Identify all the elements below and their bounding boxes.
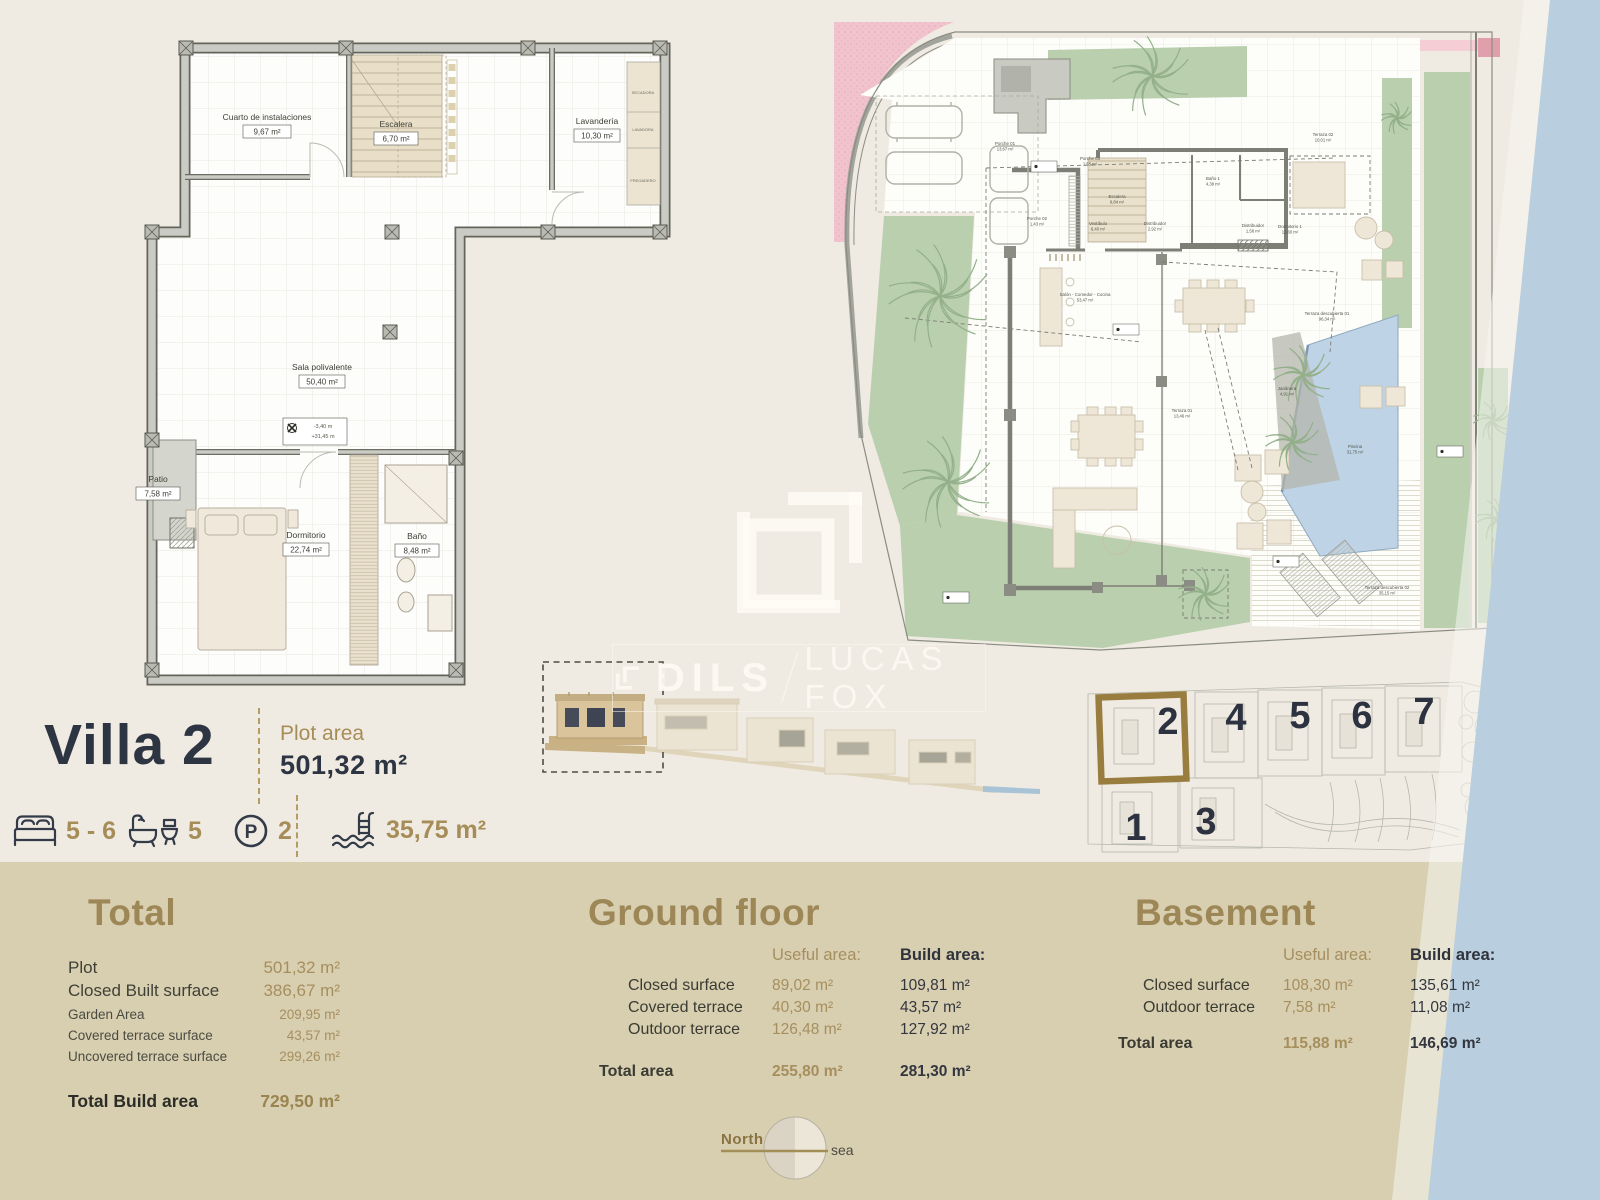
svg-text:4,38 m²: 4,38 m² (1206, 182, 1221, 187)
brand-divider (781, 653, 798, 703)
svg-text:Patio: Patio (148, 474, 168, 484)
divider-dashed (258, 708, 260, 804)
brand-bracket-icon (613, 658, 642, 698)
north-label: North (721, 1131, 764, 1148)
svg-text:SECADORA: SECADORA (632, 90, 655, 95)
divider-dashed (296, 795, 298, 857)
svg-text:6,70 m²: 6,70 m² (382, 135, 409, 144)
svg-text:+31,45 m: +31,45 m (311, 434, 335, 440)
svg-text:Cuarto de instalaciones: Cuarto de instalaciones (223, 112, 312, 122)
table-row: Covered terrace surface43,57 m² (68, 1025, 340, 1046)
level-marker: -3,40 m +31,45 m (283, 418, 347, 445)
site-plan: 2 4 5 6 7 1 3 (1080, 672, 1530, 857)
brand-left: DILS (656, 656, 775, 701)
pool-size-value: 35,75 m² (386, 816, 486, 845)
svg-text:Sala polivalente: Sala polivalente (292, 362, 352, 372)
bedrooms-value: 5 - 6 (66, 817, 116, 846)
bathrooms-value: 5 (188, 817, 202, 846)
table-row: Plot501,32 m² (68, 956, 340, 979)
svg-text:3: 3 (1195, 801, 1216, 843)
svg-text:4,91 m²: 4,91 m² (1280, 392, 1295, 397)
svg-text:22,74 m²: 22,74 m² (290, 546, 322, 555)
svg-text:Piscina: Piscina (1348, 444, 1363, 449)
svg-text:Distribuidor: Distribuidor (1242, 223, 1265, 228)
ground-floor-heading: Ground floor (588, 892, 820, 934)
plot-area-label: Plot area (280, 722, 408, 746)
total-table: Plot501,32 m² Closed Built surface386,67… (68, 956, 340, 1112)
svg-text:2,92 m²: 2,92 m² (1148, 227, 1163, 232)
plot-area-value: 501,32 m² (280, 750, 408, 781)
sea-label: sea (831, 1142, 854, 1158)
svg-text:Escalera: Escalera (1108, 194, 1126, 199)
svg-text:Dormitorio 1: Dormitorio 1 (1278, 224, 1302, 229)
svg-text:Distribuidor: Distribuidor (1144, 221, 1167, 226)
page-title: Villa 2 (44, 712, 215, 778)
room-label: Lavandería 10,30 m² (574, 116, 620, 142)
svg-text:4: 4 (1225, 697, 1246, 739)
svg-text:53,47 m²: 53,47 m² (1077, 298, 1094, 303)
total-heading: Total (88, 892, 176, 934)
svg-text:35,15 m²: 35,15 m² (1379, 591, 1396, 596)
table-row: Garden Area209,95 m² (68, 1004, 340, 1025)
svg-text:50,40 m²: 50,40 m² (306, 378, 338, 387)
svg-text:10,30 m²: 10,30 m² (581, 132, 613, 141)
stairs (352, 55, 457, 177)
svg-text:9,67 m²: 9,67 m² (253, 128, 280, 137)
svg-text:1,55 m²: 1,55 m² (1083, 162, 1098, 167)
feature-bathrooms: 5 (128, 812, 202, 850)
svg-text:LAVADORA: LAVADORA (632, 127, 654, 132)
svg-text:1: 1 (1125, 807, 1146, 849)
svg-text:Escalera: Escalera (379, 119, 412, 129)
svg-text:P: P (245, 822, 258, 843)
villa-numbers: 2 4 5 6 7 1 3 (1125, 691, 1434, 849)
bed-icon (12, 812, 58, 850)
svg-text:10,01 m²: 10,01 m² (1315, 138, 1332, 143)
parking-icon: P (232, 812, 270, 850)
svg-text:Vestíbulo: Vestíbulo (1089, 221, 1108, 226)
svg-text:13,67 m²: 13,67 m² (997, 147, 1014, 152)
svg-text:96,34 m²: 96,34 m² (1319, 317, 1336, 322)
brand-logo-watermark (725, 470, 875, 625)
parking-value: 2 (278, 817, 292, 846)
svg-text:Salón - Comedor - Cocina: Salón - Comedor - Cocina (1060, 292, 1111, 297)
svg-text:Baño: Baño (407, 531, 427, 541)
feature-parking: P 2 (232, 812, 292, 850)
svg-text:Lavandería: Lavandería (576, 116, 619, 126)
basement-floor-plan: SECADORA LAVADORA FREGADERO (130, 30, 700, 690)
room-label: Dormitorio 22,74 m² (283, 530, 329, 556)
ground-floor-table: Useful area: Build area: Closed surface … (599, 946, 1020, 1083)
svg-text:7: 7 (1413, 691, 1434, 733)
bath-icon (128, 812, 180, 850)
svg-text:Porche 01: Porche 01 (995, 141, 1016, 146)
basement-heading: Basement (1135, 892, 1316, 934)
feature-pool: 35,75 m² (330, 810, 486, 850)
table-total-row: Total Build area729,50 m² (68, 1091, 340, 1112)
feature-bedrooms: 5 - 6 (12, 812, 116, 850)
svg-text:Terraza descubierta 02: Terraza descubierta 02 (1365, 585, 1410, 590)
brochure-page: { "header": { "title": "Villa 2", "plot_… (0, 0, 1600, 1200)
svg-text:9,84 m²: 9,84 m² (1110, 200, 1125, 205)
brand-right: LUCAS FOX (804, 640, 985, 716)
table-row: Closed Built surface386,67 m² (68, 979, 340, 1002)
room-label: Escalera 6,70 m² (374, 119, 418, 145)
svg-text:13,60 m²: 13,60 m² (1282, 230, 1299, 235)
svg-text:8,48 m²: 8,48 m² (403, 547, 430, 556)
svg-text:Terraza 01: Terraza 01 (1172, 408, 1193, 413)
svg-text:Baño 1: Baño 1 (1206, 176, 1220, 181)
room-label: Sala polivalente 50,40 m² (292, 362, 352, 388)
north-sea-compass: North sea (693, 1086, 868, 1181)
svg-text:6,40 m²: 6,40 m² (1091, 227, 1106, 232)
svg-text:Terraza descubierta 01: Terraza descubierta 01 (1305, 311, 1350, 316)
svg-text:Porche 02: Porche 02 (1027, 216, 1048, 221)
svg-text:Dormitorio: Dormitorio (286, 530, 325, 540)
svg-text:Porche 03: Porche 03 (1080, 156, 1101, 161)
brand-watermark: DILS LUCAS FOX (612, 644, 986, 712)
svg-text:13,46 m²: 13,46 m² (1174, 414, 1191, 419)
table-row: Uncovered terrace surface299,26 m² (68, 1046, 340, 1067)
svg-text:1,43 m²: 1,43 m² (1030, 222, 1045, 227)
svg-text:7,58 m²: 7,58 m² (144, 490, 171, 499)
pool-icon (330, 810, 378, 850)
basement-table: Useful area: Build area: Closed surface … (1118, 946, 1530, 1055)
ground-floor-plan: Porche 0113,67 m² Porche 031,55 m² Porch… (825, 18, 1575, 678)
svg-text:1,58 m²: 1,58 m² (1246, 229, 1261, 234)
bedroom-furniture (186, 508, 298, 650)
svg-text:FREGADERO: FREGADERO (630, 178, 655, 183)
svg-text:-3,40 m: -3,40 m (314, 424, 333, 430)
plot-area-block: Plot area 501,32 m² (280, 722, 408, 781)
svg-text:5: 5 (1289, 695, 1310, 737)
svg-text:Jardinera: Jardinera (1278, 386, 1297, 391)
laundry-appliances: SECADORA LAVADORA FREGADERO (627, 62, 660, 205)
svg-text:Terraza 02: Terraza 02 (1313, 132, 1334, 137)
svg-text:2: 2 (1157, 701, 1178, 743)
svg-text:31,75 m²: 31,75 m² (1347, 450, 1364, 455)
svg-text:6: 6 (1351, 695, 1372, 737)
